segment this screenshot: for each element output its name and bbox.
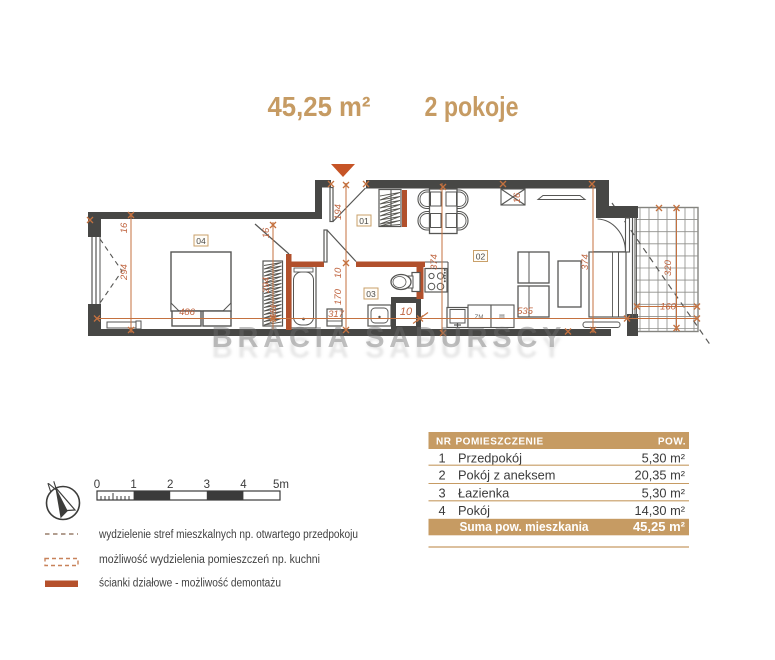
svg-text:317: 317	[328, 309, 345, 320]
svg-text:5,30 m²: 5,30 m²	[642, 451, 686, 466]
svg-text:2 pokoje: 2 pokoje	[425, 91, 519, 122]
svg-text:0: 0	[94, 479, 100, 491]
svg-text:POMIESZCZENIE: POMIESZCZENIE	[456, 437, 544, 448]
svg-text:04: 04	[196, 236, 206, 246]
svg-text:3: 3	[438, 486, 445, 501]
svg-text:294: 294	[261, 277, 272, 294]
svg-text:Łazienka: Łazienka	[458, 486, 510, 501]
svg-text:03: 03	[366, 289, 376, 299]
svg-text:374: 374	[429, 254, 440, 270]
svg-text:02: 02	[476, 252, 486, 262]
svg-text:5m: 5m	[273, 479, 289, 491]
svg-text:3: 3	[204, 479, 210, 491]
svg-text:Pokój: Pokój	[458, 503, 490, 518]
svg-text:16: 16	[261, 227, 272, 238]
svg-text:20,35 m²: 20,35 m²	[634, 468, 685, 483]
svg-text:Pokój z aneksem: Pokój z aneksem	[458, 468, 555, 483]
svg-text:14,30 m²: 14,30 m²	[634, 503, 685, 518]
svg-text:535: 535	[517, 306, 534, 317]
svg-text:2: 2	[167, 479, 173, 491]
svg-text:Suma pow. mieszkania: Suma pow. mieszkania	[460, 519, 590, 534]
svg-text:ścianki działowe - możliwość d: ścianki działowe - możliwość demontażu	[99, 578, 281, 590]
svg-text:194: 194	[333, 204, 344, 220]
svg-text:160: 160	[660, 302, 677, 313]
svg-text:wydzielenie stref mieszkalnyc: wydzielenie stref mieszkalnych np. otwar…	[98, 529, 358, 541]
svg-text:1: 1	[130, 479, 136, 491]
svg-text:POW.: POW.	[658, 437, 686, 448]
svg-text:16: 16	[119, 222, 130, 233]
svg-text:▤: ▤	[499, 314, 505, 320]
svg-text:5,30 m²: 5,30 m²	[642, 486, 686, 501]
svg-text:01: 01	[359, 216, 369, 226]
svg-text:10: 10	[333, 267, 344, 278]
svg-text:4: 4	[240, 479, 247, 491]
svg-text:45,25 m²: 45,25 m²	[268, 91, 371, 122]
svg-text:151: 151	[269, 304, 278, 317]
svg-text:2: 2	[438, 468, 445, 483]
svg-text:BRACIA SADURSCY: BRACIA SADURSCY	[212, 333, 567, 365]
svg-text:10: 10	[400, 306, 413, 318]
svg-text:294: 294	[119, 264, 130, 281]
svg-text:170: 170	[333, 288, 344, 305]
svg-text:486: 486	[179, 307, 196, 318]
svg-text:45,25 m²: 45,25 m²	[633, 519, 686, 534]
svg-text:4: 4	[438, 503, 445, 518]
svg-text:NR: NR	[436, 437, 452, 448]
svg-text:możliwość wydzielenia pomieszc: możliwość wydzielenia pomieszczeń np. ku…	[99, 554, 320, 566]
svg-text:Przedpokój: Przedpokój	[458, 451, 522, 466]
svg-text:320: 320	[663, 259, 674, 276]
svg-text:374: 374	[580, 254, 591, 270]
svg-text:1: 1	[438, 451, 445, 466]
svg-text:16: 16	[512, 192, 523, 203]
